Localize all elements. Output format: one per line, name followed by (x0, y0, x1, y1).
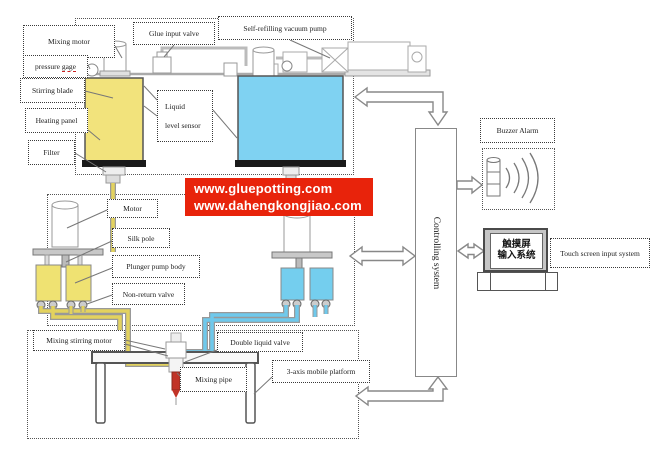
label-3-axis-mobile-platform: 3-axis mobile platform (272, 360, 370, 383)
label-filter: Filter (28, 140, 75, 165)
pump-motor-part (52, 205, 78, 247)
filter-part (103, 167, 125, 175)
glue-input-valve-part (153, 57, 171, 73)
label-plunger-pump-body: Plunger pump body (112, 255, 200, 278)
plunger-pump-right (272, 210, 333, 308)
label-buzzer-alarm: Buzzer Alarm (480, 118, 555, 143)
touch-screen-display[interactable]: 触摸屏 输入系统 (490, 233, 543, 269)
touch-screen-text-line1: 触摸屏 (502, 240, 531, 251)
label-glue-input-valve: Glue input valve (133, 22, 215, 45)
plunger-pump-left (33, 201, 103, 309)
label-liquid-level-sensor: Liquid level sensor (157, 90, 213, 142)
label-self-refilling-vacuum-pump: Self-refilling vacuum pump (218, 16, 352, 40)
diagram-canvas: Controlling system www.gluepotting.com w… (0, 0, 650, 452)
mixing-stirring-motor-part (166, 342, 186, 358)
buzzer (487, 153, 538, 203)
monitor-base-divider (490, 273, 491, 290)
controlling-system-label: Controlling system (431, 216, 441, 289)
banner-url-2: www.dahengkongjiao.com (194, 197, 373, 214)
label-silk-pole: Silk pole (112, 228, 170, 248)
label-heating-panel: Heating panel (25, 108, 88, 133)
label-stirring-blade: Stirring blade (20, 78, 85, 103)
label-motor: Motor (107, 199, 158, 218)
banner-url-1: www.gluepotting.com (194, 180, 373, 197)
touch-screen-text-line2: 输入系统 (497, 251, 535, 262)
label-mixing-pipe: Mixing pipe (180, 367, 247, 392)
label-mixing-stirring-motor: Mixing stirring motor (33, 330, 125, 351)
label-pressure-gage: pressure gage (23, 55, 88, 78)
sound-waves-icon (506, 153, 538, 203)
label-mixing-motor: Mixing motor (23, 25, 115, 58)
monitor-base-divider (545, 273, 546, 290)
arrow-controller-touchscreen (458, 244, 484, 258)
arrow-pumps-controller (350, 247, 415, 265)
arrow-tanks-to-controller (355, 88, 447, 125)
banner: www.gluepotting.com www.dahengkongjiao.c… (185, 178, 373, 216)
plunger-pump-body-part (36, 265, 61, 301)
arrow-controller-to-buzzer (457, 177, 482, 193)
monitor-base (477, 272, 558, 291)
label-non-return-valve: Non-return valve (112, 283, 185, 305)
label-touch-screen-input-system: Touch screen input system (550, 238, 650, 268)
label-double-liquid-valve: Double liquid valve (217, 332, 303, 352)
controlling-system-box: Controlling system (415, 128, 457, 377)
